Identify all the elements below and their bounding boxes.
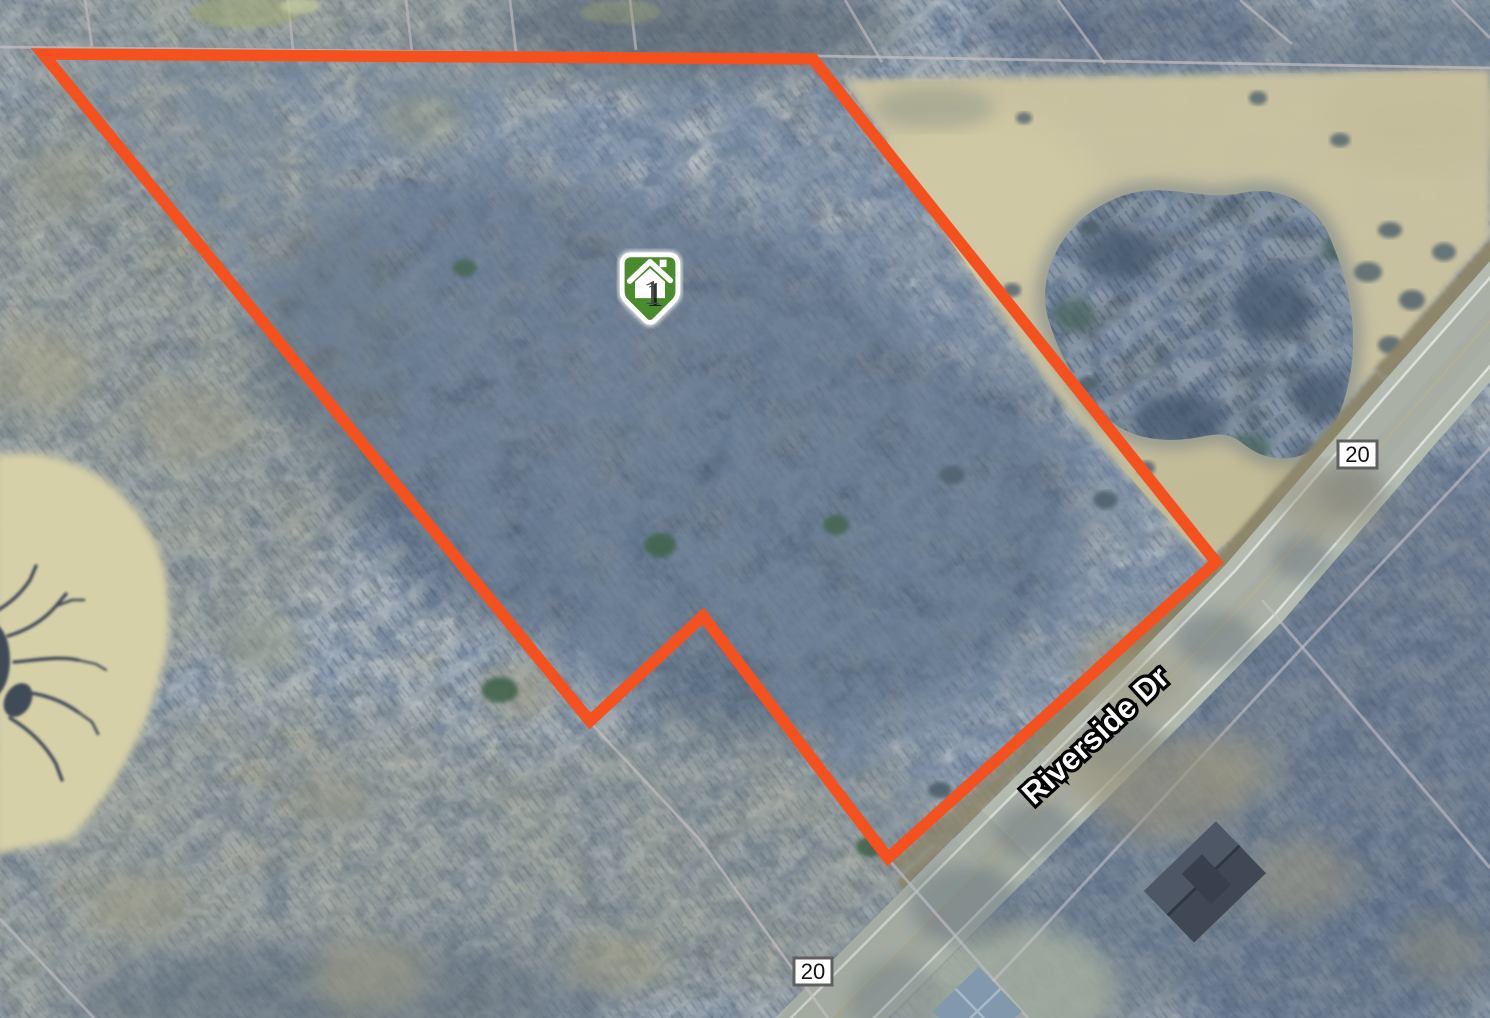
svg-text:1: 1 — [643, 273, 661, 312]
svg-text:20: 20 — [801, 959, 825, 984]
svg-text:20: 20 — [1345, 442, 1369, 467]
